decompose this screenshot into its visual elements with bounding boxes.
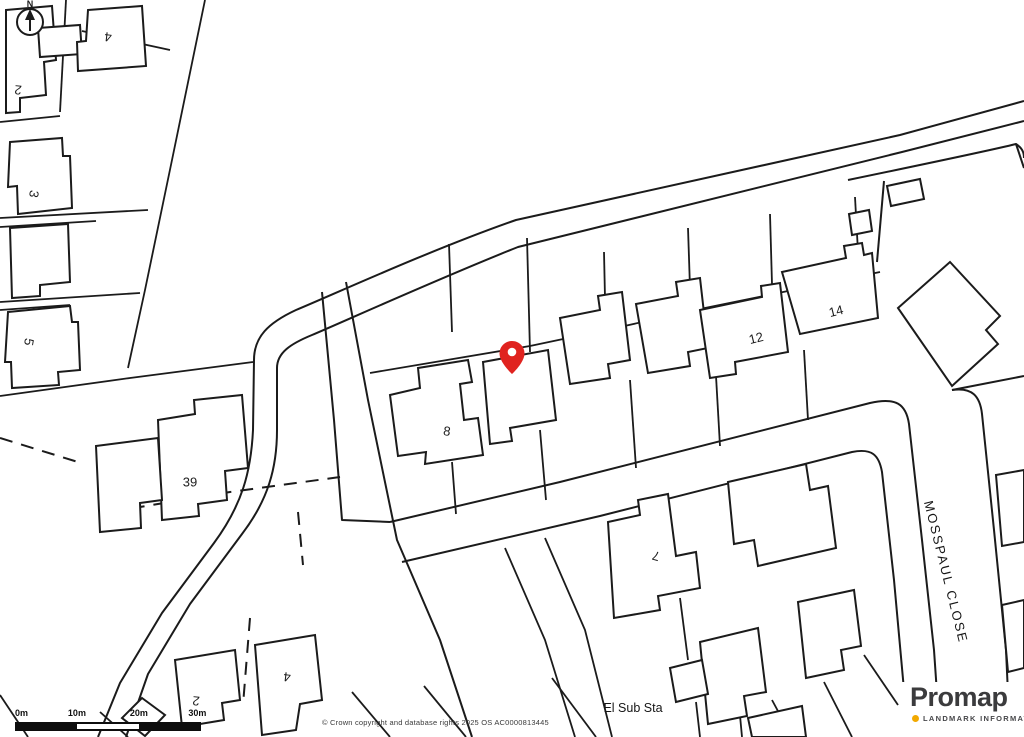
- plot-number-label: 2: [192, 694, 201, 708]
- building-south-a: [700, 628, 766, 724]
- plot-number-label: 14: [827, 303, 844, 319]
- building-3: [8, 138, 72, 214]
- building-39: [158, 395, 248, 520]
- promap-logo: Promap LANDMARK INFORMATION: [900, 682, 1024, 737]
- attribution-text: © Crown copyright and database rights 20…: [322, 718, 549, 727]
- building-4-top: [77, 6, 146, 71]
- building-small-rect-a: [887, 179, 924, 206]
- scale-bar-segments: [15, 722, 201, 731]
- plot-number-label: 12: [747, 330, 764, 346]
- north-arrow-icon: N: [17, 0, 43, 35]
- building-row-b: [636, 278, 708, 373]
- substation-label: El Sub Sta: [603, 702, 662, 715]
- building-el-sub-sta: [670, 660, 708, 702]
- building-northeast: [898, 262, 1000, 386]
- buildings: [5, 6, 1024, 737]
- building-14: [782, 243, 878, 334]
- plot-number-label: 4: [104, 30, 113, 44]
- map-canvas[interactable]: N: [0, 0, 1024, 737]
- scale-tick-label: 10m: [68, 708, 86, 718]
- building-39-annex: [96, 438, 162, 532]
- svg-text:N: N: [27, 0, 34, 9]
- building-partial-right-a: [996, 470, 1024, 546]
- scale-tick-label: 20m: [130, 708, 148, 718]
- scale-tick-label: 30m: [188, 708, 206, 718]
- building-outbuilding: [38, 25, 82, 57]
- logo-brand-text: Promap: [910, 684, 1008, 711]
- plot-number-label: 4: [283, 670, 292, 684]
- plot-number-label: 39: [183, 476, 197, 489]
- building-partial-right-b: [1002, 600, 1024, 672]
- building-5: [5, 306, 80, 388]
- logo-tagline: LANDMARK INFORMATION: [923, 714, 1024, 723]
- building-8: [390, 360, 483, 464]
- map-viewport[interactable]: N 2 4 3 5 39 8 12 14 7 2 4 MOSSPAUL CLOS…: [0, 0, 1024, 737]
- building-south-b: [798, 590, 861, 678]
- logo-dot-icon: [912, 715, 919, 722]
- building-row-a: [560, 292, 630, 384]
- building-unnumbered-left: [10, 224, 70, 298]
- building-south-c: [748, 706, 806, 737]
- plot-number-label: 2: [14, 83, 23, 97]
- building-4-bottom: [255, 635, 322, 735]
- building-12: [700, 283, 788, 378]
- scale-tick-label: 0m: [15, 708, 28, 718]
- scale-bar: 0m 10m 20m 30m: [15, 708, 201, 732]
- building-small-rect-b: [849, 210, 872, 235]
- building-south-large: [728, 464, 836, 566]
